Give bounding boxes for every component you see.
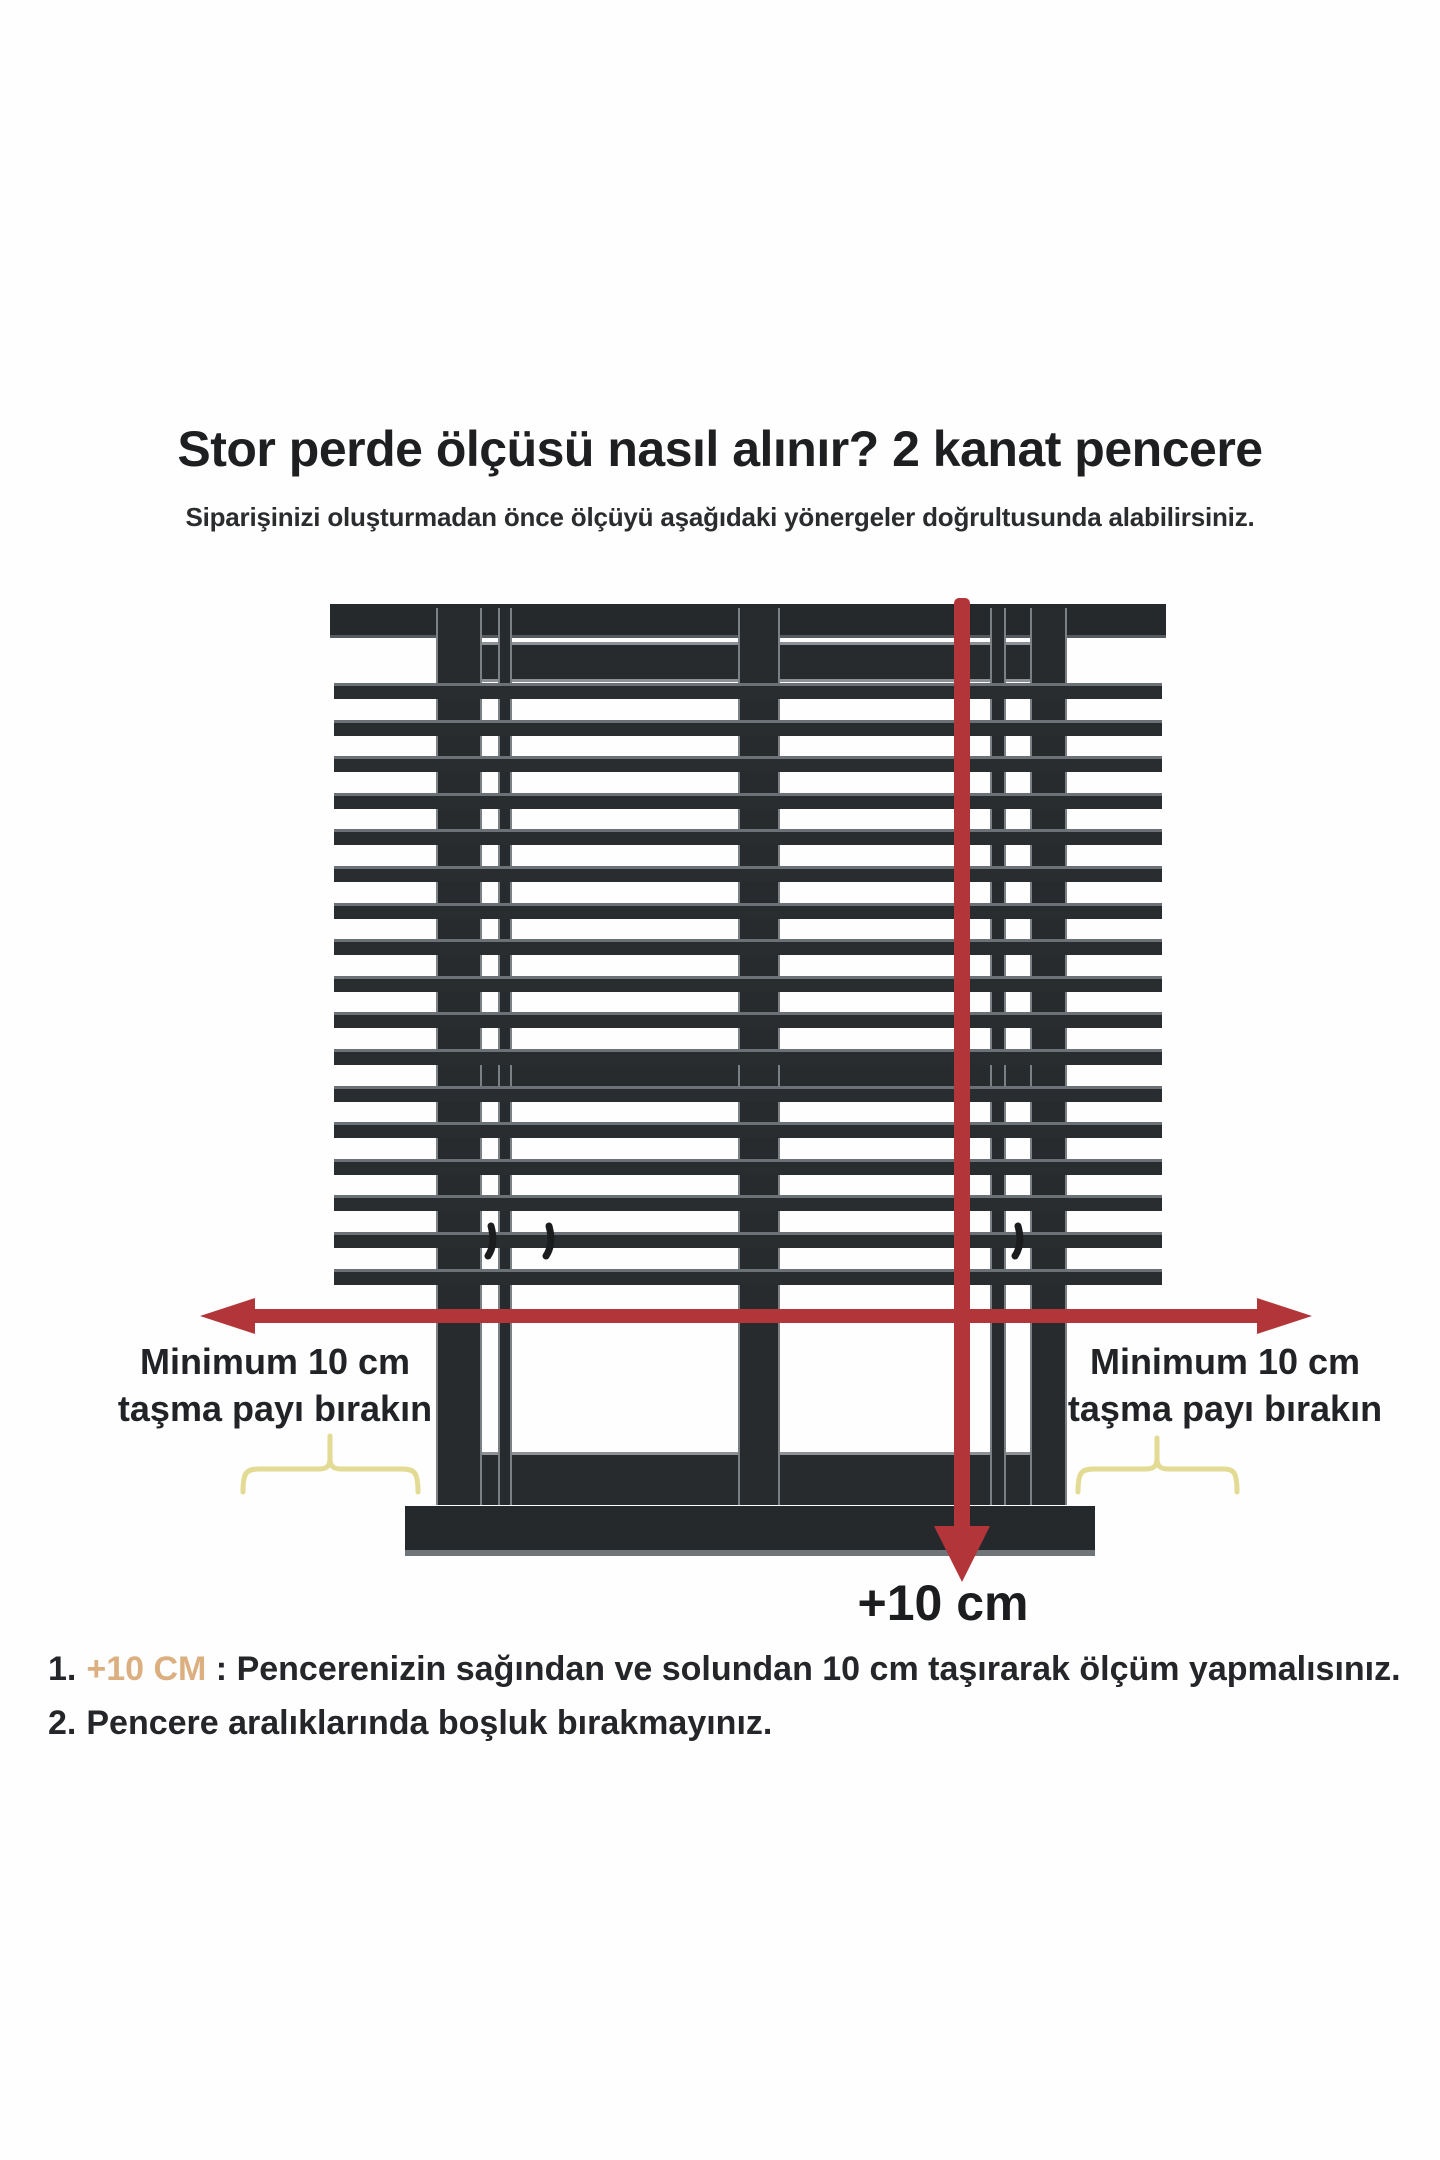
instruction-1-text: : Pencerenizin sağından ve solundan 10 c… [206, 1650, 1400, 1688]
blind-slat [334, 939, 1162, 955]
blind-slat [334, 1232, 1162, 1248]
blind-slat [334, 683, 1162, 699]
blind-slat [334, 866, 1162, 882]
blind-slat [334, 1195, 1162, 1211]
left-overhang-label-line1: Minimum 10 cm [75, 1338, 475, 1385]
right-overhang-label-line2: taşma payı bırakın [1025, 1385, 1425, 1432]
blind-slat [334, 1122, 1162, 1138]
instruction-item-2: 2.Pencere aralıklarında boşluk bırakmayı… [48, 1696, 1401, 1750]
blind-slat [334, 793, 1162, 809]
measurement-infographic: Stor perde ölçüsü nasıl alınır? 2 kanat … [0, 0, 1440, 2160]
height-arrow-label: +10 cm [793, 1574, 1093, 1632]
right-overhang-label: Minimum 10 cm taşma payı bırakın [1025, 1338, 1425, 1432]
instruction-2-number: 2. [48, 1704, 76, 1742]
right-overhang-label-line1: Minimum 10 cm [1025, 1338, 1425, 1385]
blind-slat [334, 1159, 1162, 1175]
blind-slat [334, 1086, 1162, 1102]
blind-slat [334, 1269, 1162, 1285]
blind-slat [334, 756, 1162, 772]
blind-slat [334, 976, 1162, 992]
instruction-list: 1.+10 CM : Pencerenizin sağından ve solu… [48, 1642, 1401, 1750]
left-overhang-label: Minimum 10 cm taşma payı bırakın [75, 1338, 475, 1432]
instruction-item-1: 1.+10 CM : Pencerenizin sağından ve solu… [48, 1642, 1401, 1696]
blind-slat [334, 720, 1162, 736]
blind-slats [0, 0, 1440, 2160]
left-overhang-label-line2: taşma payı bırakın [75, 1385, 475, 1432]
blind-slat [334, 1049, 1162, 1065]
instruction-2-text: Pencere aralıklarında boşluk bırakmayını… [86, 1704, 772, 1742]
blind-slat [334, 829, 1162, 845]
blind-slat [334, 903, 1162, 919]
instruction-1-highlight: +10 CM [86, 1650, 206, 1688]
instruction-1-number: 1. [48, 1650, 76, 1688]
blind-slat [334, 1012, 1162, 1028]
